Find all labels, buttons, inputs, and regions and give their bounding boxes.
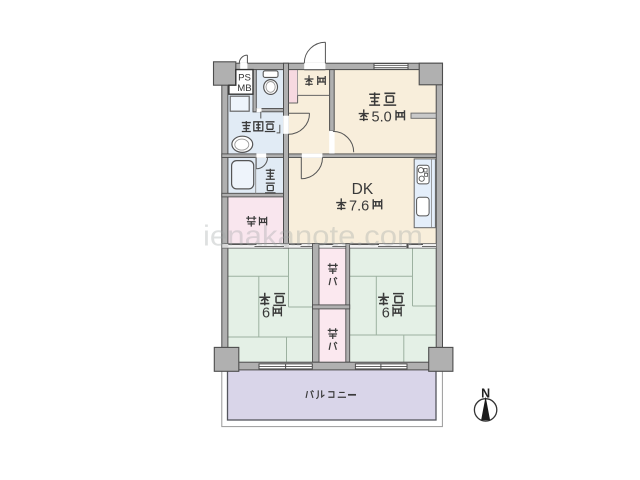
svg-text:PS: PS: [238, 72, 251, 83]
svg-text:6: 6: [382, 305, 390, 321]
svg-text:ienakanote.com: ienakanote.com: [203, 221, 423, 253]
svg-text:6: 6: [262, 305, 270, 321]
svg-text:N: N: [481, 387, 490, 401]
svg-text:MB: MB: [237, 83, 251, 94]
svg-text:DK: DK: [352, 181, 374, 198]
svg-text:7.6: 7.6: [349, 199, 369, 215]
svg-text:5.0: 5.0: [372, 110, 392, 126]
